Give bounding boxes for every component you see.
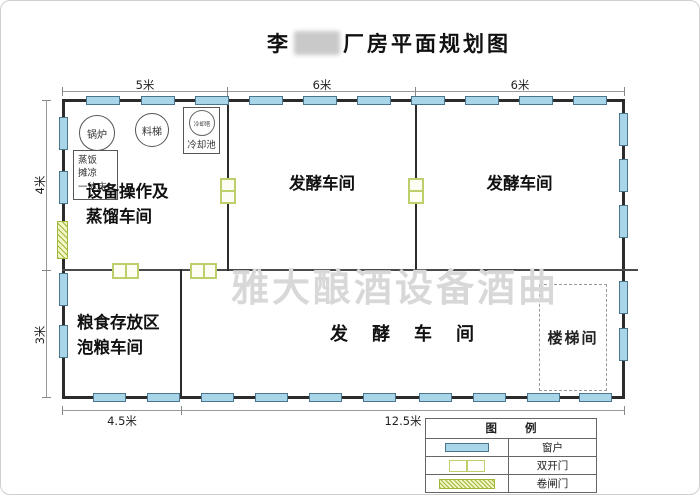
- window: [527, 393, 560, 402]
- window: [309, 393, 342, 402]
- double-door-symbol-cell: [426, 457, 509, 474]
- legend-label-window: 窗户: [509, 439, 596, 456]
- dim-left-1: 4米: [32, 170, 48, 200]
- material-hoist-label: 料梯: [142, 123, 162, 138]
- room-label-ferment-top-left: 发酵车间: [229, 172, 415, 197]
- dim-bottom-1: 4.5米: [62, 413, 182, 429]
- window: [465, 96, 499, 105]
- window: [255, 393, 288, 402]
- roller-door-symbol-cell: [426, 475, 509, 492]
- room-label-ferment-bottom: 发酵车间: [182, 321, 622, 348]
- window: [363, 393, 396, 402]
- window-symbol-cell: [426, 439, 509, 456]
- window: [411, 96, 445, 105]
- window: [59, 117, 68, 150]
- window: [147, 393, 180, 402]
- window: [59, 171, 68, 204]
- window: [573, 96, 607, 105]
- legend-row-roller-door: 卷闸门: [426, 475, 596, 492]
- window: [249, 96, 283, 105]
- window: [619, 113, 628, 146]
- legend: 图 例 窗户 双开门 卷闸门: [425, 418, 597, 493]
- window: [93, 393, 126, 402]
- window: [579, 393, 612, 402]
- window: [619, 205, 628, 238]
- cooling-pool-label: 冷却池: [184, 137, 219, 151]
- legend-label-roller-door: 卷闸门: [509, 475, 596, 492]
- window: [195, 96, 229, 105]
- cooling-pool-box: 冷却塔 冷却池: [183, 107, 220, 154]
- watermark: 雅大酿酒设备酒曲: [231, 257, 559, 312]
- dim-left-2: 3米: [32, 320, 48, 350]
- cooling-tower-circle: 冷却塔: [189, 110, 215, 136]
- legend-label-double-door: 双开门: [509, 457, 596, 474]
- cooling-tower-label: 冷却塔: [193, 119, 210, 127]
- material-hoist-circle: 料梯: [135, 113, 169, 147]
- dim-line-bottom: [62, 410, 625, 411]
- window: [519, 96, 553, 105]
- dim-tick: [42, 100, 51, 101]
- boiler-circle: 锅炉: [79, 115, 115, 151]
- window: [357, 96, 391, 105]
- dim-tick: [624, 87, 625, 96]
- window: [59, 273, 68, 306]
- room-label-ferment-top-right: 发酵车间: [417, 172, 622, 197]
- window: [419, 393, 452, 402]
- window: [59, 325, 68, 358]
- room-label-equipment: 设备操作及 蒸馏车间: [86, 180, 169, 230]
- dim-tick: [42, 270, 51, 271]
- dim-top-2: 6米: [228, 77, 416, 93]
- window: [303, 96, 337, 105]
- dim-top-3: 6米: [416, 77, 624, 93]
- double-door-icon: [449, 460, 485, 472]
- window-icon: [445, 443, 489, 452]
- window: [473, 393, 506, 402]
- double-door: [112, 263, 139, 279]
- window: [141, 96, 175, 105]
- wall-middle: [62, 269, 638, 271]
- legend-row-double-door: 双开门: [426, 457, 596, 475]
- roller-door: [57, 221, 68, 259]
- page: 李厂房平面规划图: [0, 0, 700, 495]
- dim-top-1: 5米: [62, 77, 228, 93]
- dim-tick: [42, 397, 51, 398]
- window: [201, 393, 234, 402]
- window: [619, 281, 628, 314]
- boiler-label: 锅炉: [87, 126, 107, 141]
- roller-door-icon: [439, 479, 495, 489]
- dim-line-left: [46, 100, 47, 398]
- legend-row-window: 窗户: [426, 439, 596, 457]
- room-label-grain: 粮食存放区 泡粮车间: [77, 311, 160, 361]
- double-door: [190, 263, 217, 279]
- floor-plan: 锅炉 料梯 冷却塔 冷却池 蒸饭 摊凉 一体床 设备操作及 蒸馏车间 发酵车间 …: [1, 1, 699, 494]
- legend-title: 图 例: [426, 419, 596, 439]
- window: [86, 96, 120, 105]
